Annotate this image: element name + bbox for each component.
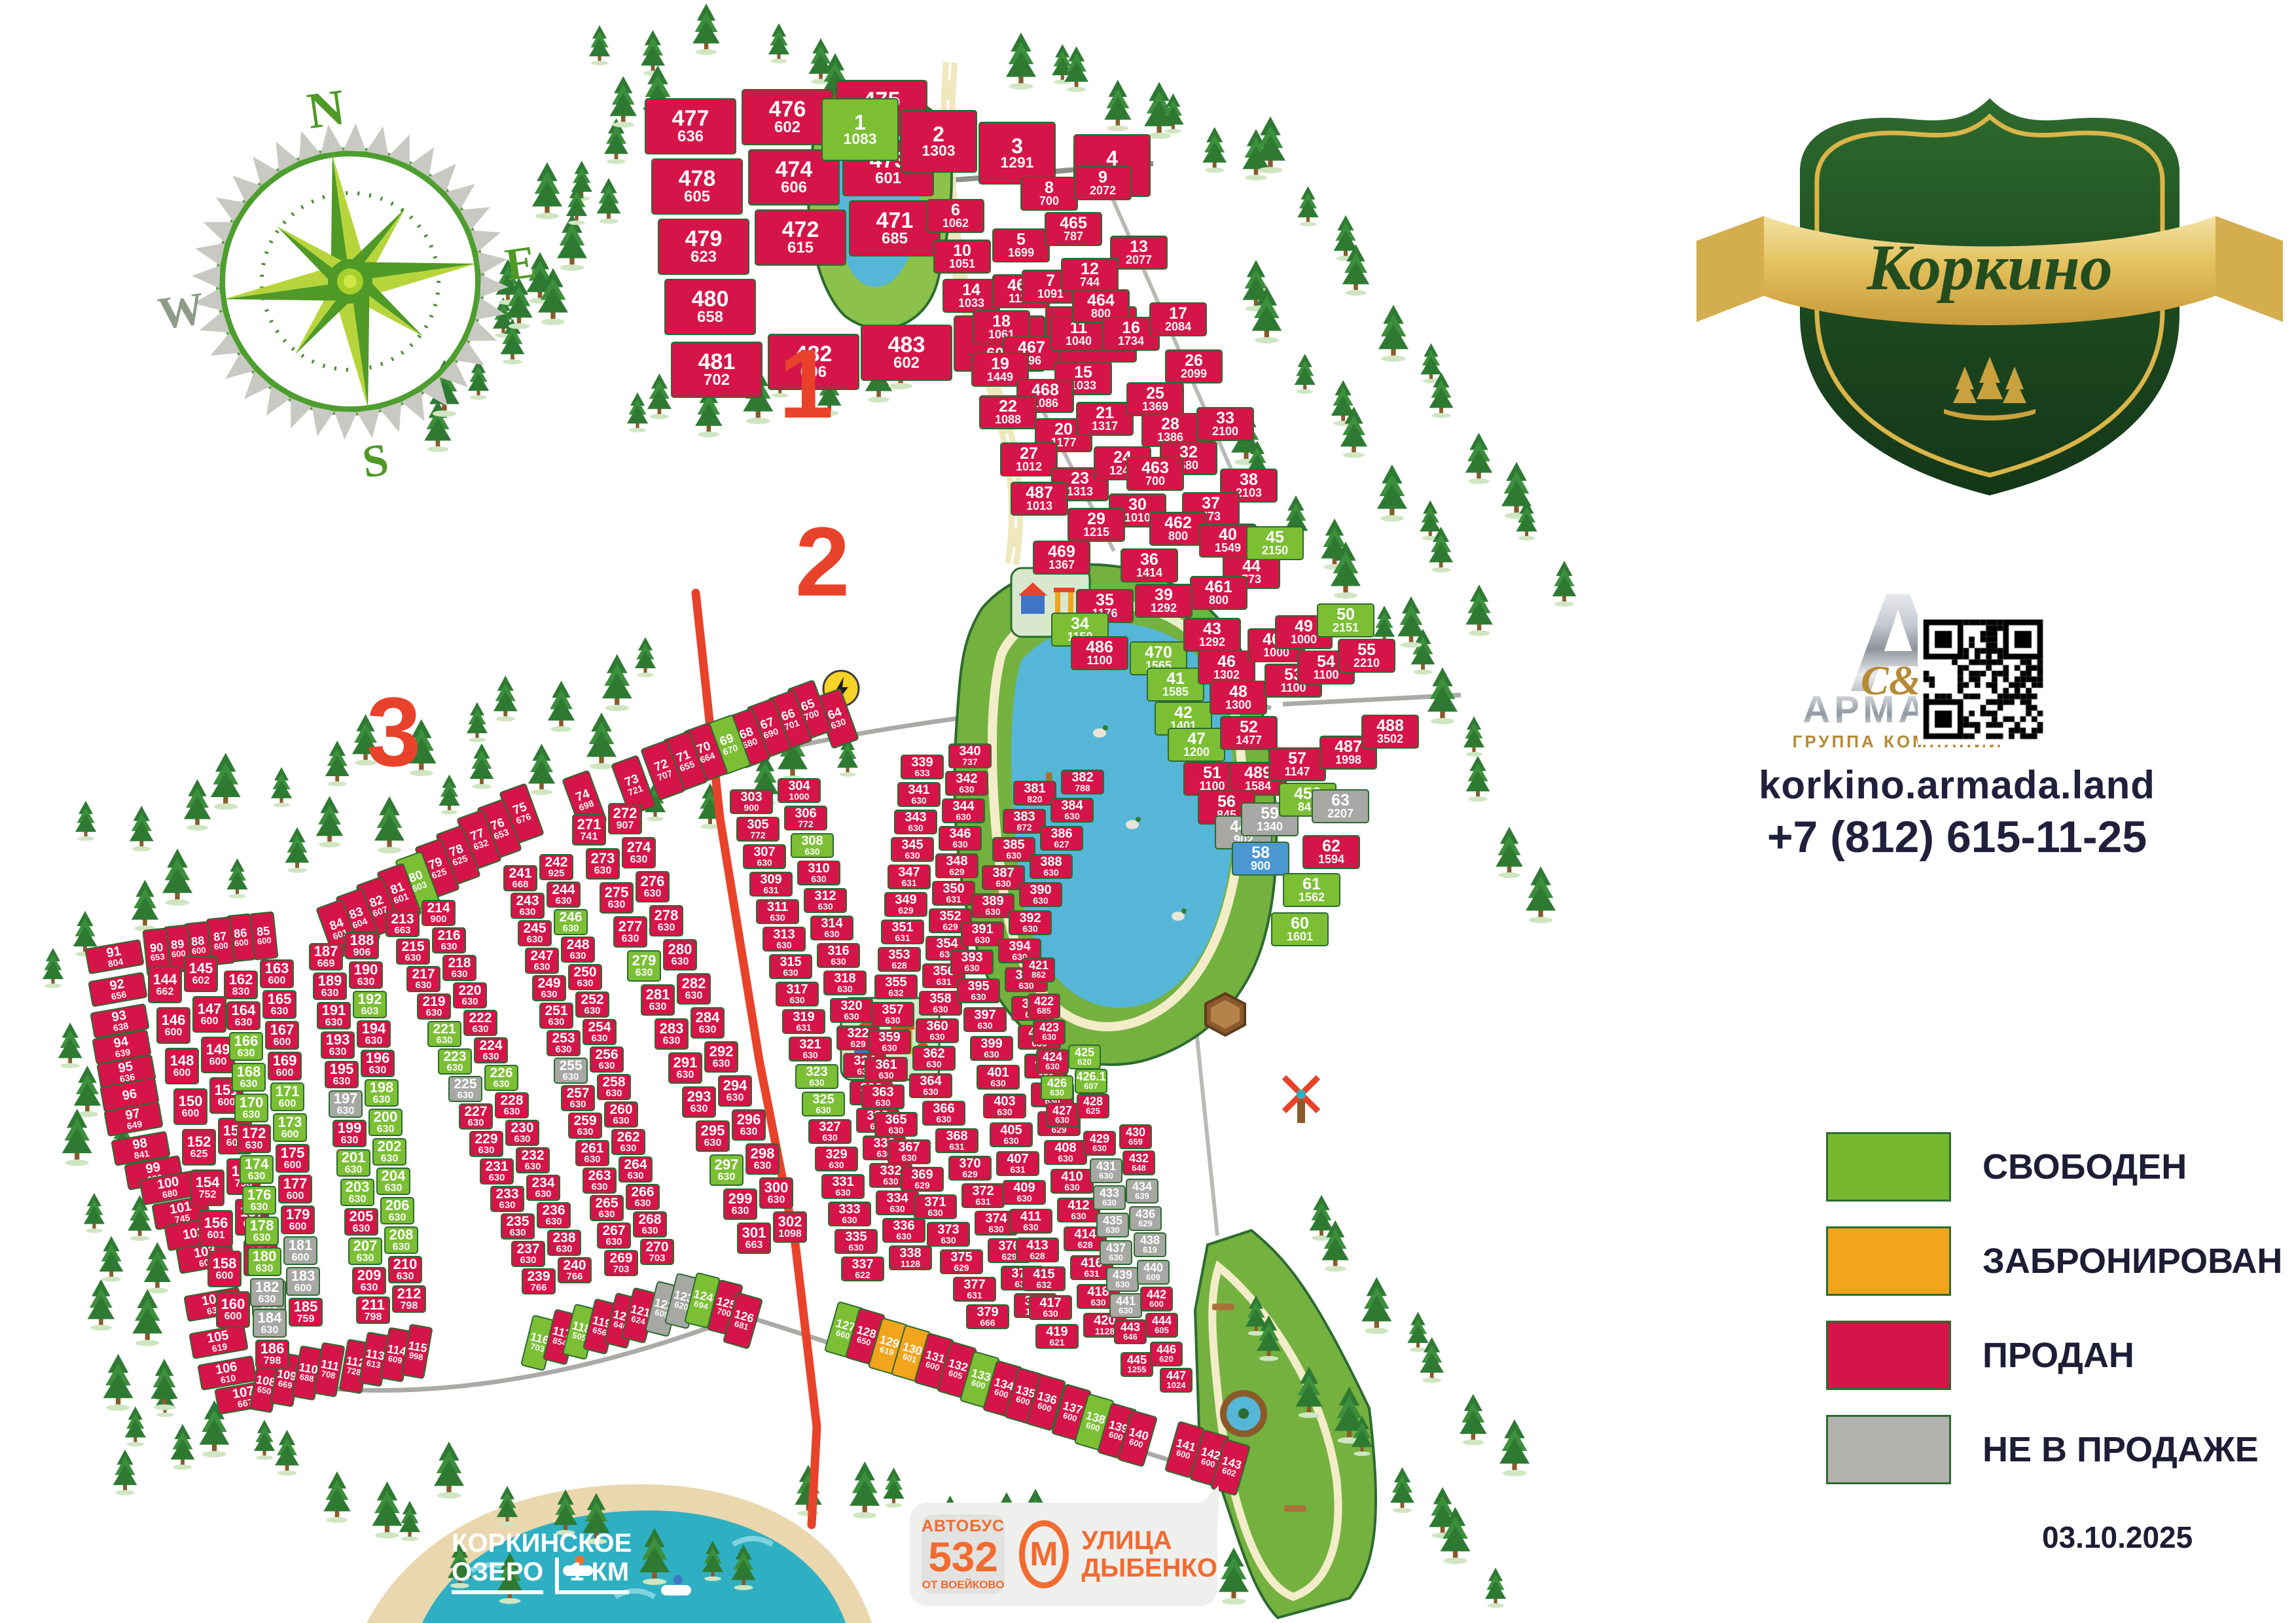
plot-46[interactable]: 461302 [1198, 651, 1255, 685]
plot-52[interactable]: 521477 [1220, 716, 1278, 750]
plot-427[interactable]: 427630 [1046, 1103, 1079, 1128]
plot-218[interactable]: 218630 [442, 955, 476, 981]
plot-430[interactable]: 430659 [1119, 1124, 1152, 1149]
plot-433[interactable]: 433630 [1093, 1185, 1126, 1210]
plot-147[interactable]: 147600 [192, 996, 226, 1033]
plot-305[interactable]: 305772 [736, 817, 780, 842]
plot-268[interactable]: 268630 [633, 1211, 667, 1238]
plot-434[interactable]: 434639 [1126, 1179, 1158, 1204]
plot-260[interactable]: 260630 [604, 1101, 638, 1128]
plot-247[interactable]: 247630 [525, 948, 559, 974]
plot-415[interactable]: 415632 [1022, 1266, 1066, 1291]
plot-444[interactable]: 444605 [1145, 1313, 1178, 1338]
plot-17[interactable]: 172084 [1149, 302, 1207, 336]
plot-196[interactable]: 196630 [361, 1050, 395, 1077]
plot-148[interactable]: 148600 [165, 1048, 199, 1084]
plot-265[interactable]: 265630 [590, 1195, 624, 1221]
plot-248[interactable]: 248630 [561, 936, 595, 963]
plot-275[interactable]: 275630 [600, 882, 634, 914]
plot-331[interactable]: 331630 [821, 1174, 865, 1199]
plot-426.1[interactable]: 426.1607 [1075, 1069, 1107, 1094]
plot-194[interactable]: 194630 [357, 1020, 391, 1048]
plot-439[interactable]: 439630 [1106, 1267, 1139, 1292]
plot-48[interactable]: 481300 [1210, 681, 1267, 715]
plot-188[interactable]: 188906 [345, 932, 379, 959]
plot-171[interactable]: 171600 [270, 1082, 304, 1111]
plot-405[interactable]: 405630 [990, 1122, 1033, 1147]
plot-483[interactable]: 483602 [861, 325, 952, 381]
plot-281[interactable]: 281630 [641, 984, 675, 1016]
plot-240[interactable]: 240766 [558, 1257, 592, 1283]
plot-57[interactable]: 571147 [1268, 747, 1326, 781]
plot-250[interactable]: 250630 [568, 964, 602, 990]
plot-205[interactable]: 205630 [344, 1208, 378, 1236]
plot-313[interactable]: 313630 [762, 927, 806, 952]
phone-number[interactable]: +7 (812) 615-11-25 [1715, 811, 2199, 863]
plot-366[interactable]: 366630 [922, 1101, 965, 1126]
plot-345[interactable]: 345630 [891, 837, 934, 862]
plot-295[interactable]: 295630 [696, 1120, 730, 1152]
plot-228[interactable]: 228630 [495, 1092, 529, 1118]
plot-333[interactable]: 333630 [828, 1202, 871, 1226]
plot-200[interactable]: 200630 [368, 1109, 403, 1136]
plot-190[interactable]: 190630 [349, 961, 383, 989]
plot-249[interactable]: 249630 [532, 975, 566, 1001]
plot-472[interactable]: 472615 [755, 209, 846, 266]
plot-173[interactable]: 173600 [273, 1113, 307, 1142]
plot-232[interactable]: 232630 [516, 1147, 550, 1173]
plot-144[interactable]: 144662 [148, 967, 182, 1003]
plot-279[interactable]: 279630 [627, 950, 661, 982]
plot-348[interactable]: 348629 [935, 853, 978, 878]
plot-36[interactable]: 361414 [1121, 548, 1178, 582]
plot-351[interactable]: 351631 [881, 919, 924, 944]
plot-186[interactable]: 186798 [255, 1340, 289, 1368]
plot-270[interactable]: 270703 [640, 1239, 674, 1265]
plot-216[interactable]: 216630 [432, 927, 466, 954]
plot-308[interactable]: 308630 [791, 833, 834, 858]
plot-241[interactable]: 241668 [503, 865, 537, 891]
plot-6[interactable]: 61062 [927, 199, 984, 233]
plot-259[interactable]: 259630 [568, 1113, 602, 1139]
plot-432[interactable]: 432648 [1122, 1150, 1155, 1175]
plot-403[interactable]: 403630 [983, 1094, 1026, 1118]
plot-479[interactable]: 479623 [658, 219, 749, 275]
plot-245[interactable]: 245630 [518, 920, 552, 946]
plot-410[interactable]: 410630 [1050, 1169, 1094, 1194]
plot-311[interactable]: 311630 [756, 899, 799, 924]
plot-327[interactable]: 327630 [808, 1119, 852, 1144]
plot-166[interactable]: 166630 [229, 1032, 263, 1061]
plot-342[interactable]: 342630 [945, 771, 988, 796]
plot-442[interactable]: 442600 [1140, 1287, 1173, 1311]
plot-303[interactable]: 303900 [730, 789, 773, 814]
plot-239[interactable]: 239766 [522, 1268, 556, 1294]
plot-372[interactable]: 372631 [961, 1183, 1005, 1208]
plot-274[interactable]: 274630 [622, 837, 656, 868]
plot-234[interactable]: 234630 [526, 1175, 560, 1201]
plot-316[interactable]: 316630 [817, 943, 860, 968]
plot-388[interactable]: 388630 [1030, 854, 1073, 879]
plot-50[interactable]: 502151 [1317, 603, 1374, 637]
plot-278[interactable]: 278630 [649, 905, 683, 936]
plot-346[interactable]: 346630 [939, 826, 982, 851]
plot-63[interactable]: 632207 [1312, 789, 1369, 823]
plot-373[interactable]: 373630 [927, 1222, 970, 1247]
plot-461[interactable]: 461800 [1190, 576, 1247, 610]
plot-395[interactable]: 395630 [957, 978, 1000, 1003]
plot-209[interactable]: 209630 [352, 1267, 386, 1294]
plot-178[interactable]: 178630 [245, 1217, 279, 1245]
plot-321[interactable]: 321630 [789, 1037, 832, 1061]
plot-422[interactable]: 422685 [1028, 993, 1060, 1018]
plot-363[interactable]: 363630 [861, 1084, 905, 1109]
plot-447[interactable]: 4471024 [1160, 1368, 1193, 1393]
plot-306[interactable]: 306772 [784, 806, 827, 830]
plot-407[interactable]: 407631 [996, 1151, 1039, 1176]
plot-393[interactable]: 393630 [950, 950, 994, 974]
plot-438[interactable]: 438619 [1134, 1232, 1166, 1257]
plot-43[interactable]: 431292 [1183, 618, 1241, 652]
plot-187[interactable]: 187669 [309, 943, 343, 971]
plot-242[interactable]: 242925 [539, 854, 573, 880]
plot-258[interactable]: 258630 [597, 1074, 631, 1100]
plot-413[interactable]: 413628 [1016, 1238, 1059, 1262]
plot-257[interactable]: 257630 [561, 1085, 595, 1111]
plot-243[interactable]: 243630 [511, 893, 545, 919]
plot-211[interactable]: 211798 [356, 1296, 390, 1324]
plot-465[interactable]: 465787 [1045, 212, 1102, 246]
plot-210[interactable]: 210630 [388, 1256, 422, 1283]
plot-27[interactable]: 271012 [1000, 442, 1058, 476]
plot-337[interactable]: 337622 [841, 1257, 884, 1281]
plot-10[interactable]: 101051 [933, 240, 991, 274]
plot-353[interactable]: 353628 [878, 947, 921, 972]
plot-325[interactable]: 325630 [802, 1092, 845, 1116]
plot-33[interactable]: 332100 [1196, 407, 1254, 441]
plot-357[interactable]: 357630 [871, 1002, 914, 1027]
plot-392[interactable]: 392630 [1009, 910, 1052, 935]
plot-425[interactable]: 425620 [1068, 1044, 1101, 1069]
plot-469[interactable]: 4691367 [1033, 541, 1090, 575]
plot-26[interactable]: 262099 [1165, 349, 1223, 383]
plot-222[interactable]: 222630 [463, 1010, 497, 1036]
plot-224[interactable]: 224630 [474, 1037, 508, 1063]
plot-45[interactable]: 452150 [1246, 526, 1304, 560]
plot-369[interactable]: 369629 [901, 1167, 944, 1192]
plot-246[interactable]: 246630 [554, 909, 588, 935]
plot-229[interactable]: 229630 [469, 1131, 503, 1157]
plot-214[interactable]: 214900 [422, 900, 456, 926]
plot-191[interactable]: 191630 [317, 1002, 351, 1029]
plot-193[interactable]: 193630 [321, 1031, 355, 1059]
plot-362[interactable]: 362630 [912, 1046, 956, 1071]
plot-307[interactable]: 307630 [743, 844, 786, 869]
plot-272[interactable]: 272907 [608, 803, 642, 834]
plot-195[interactable]: 195630 [325, 1061, 359, 1088]
plot-426[interactable]: 426630 [1041, 1075, 1073, 1100]
plot-428[interactable]: 428625 [1077, 1094, 1109, 1118]
plot-283[interactable]: 283630 [655, 1018, 689, 1050]
plot-478[interactable]: 478605 [651, 158, 743, 215]
plot-164[interactable]: 164630 [226, 1001, 260, 1030]
plot-183[interactable]: 183600 [286, 1267, 320, 1296]
plot-359[interactable]: 359630 [868, 1029, 911, 1054]
plot-233[interactable]: 233630 [490, 1186, 524, 1212]
plot-9[interactable]: 92072 [1074, 166, 1132, 200]
plot-481[interactable]: 481702 [671, 342, 762, 398]
plot-267[interactable]: 267630 [597, 1222, 631, 1249]
plot-382[interactable]: 382788 [1061, 770, 1104, 794]
plot-338[interactable]: 3381128 [889, 1245, 932, 1270]
plot-208[interactable]: 208630 [384, 1226, 418, 1254]
plot-152[interactable]: 152625 [182, 1129, 216, 1166]
plot-323[interactable]: 323630 [795, 1064, 838, 1089]
plot-263[interactable]: 263630 [583, 1168, 617, 1194]
plot-421[interactable]: 421862 [1022, 957, 1055, 982]
plot-12[interactable]: 12744 [1061, 258, 1119, 292]
plot-437[interactable]: 437630 [1100, 1240, 1132, 1265]
plot-160[interactable]: 160600 [216, 1291, 250, 1328]
plot-235[interactable]: 235630 [501, 1213, 535, 1240]
plot-336[interactable]: 336630 [882, 1218, 925, 1243]
plot-349[interactable]: 349629 [884, 892, 927, 917]
plot-314[interactable]: 314630 [810, 916, 853, 940]
plot-423[interactable]: 423630 [1033, 1020, 1066, 1044]
plot-277[interactable]: 277630 [613, 916, 647, 948]
plot-339[interactable]: 339633 [901, 755, 944, 779]
plot-251[interactable]: 251630 [539, 1003, 573, 1029]
plot-350[interactable]: 350631 [932, 881, 975, 906]
plot-440[interactable]: 440609 [1137, 1260, 1170, 1285]
plot-145[interactable]: 145602 [184, 955, 218, 992]
plot-371[interactable]: 371630 [914, 1194, 957, 1219]
plot-1[interactable]: 11083 [821, 98, 899, 161]
plot-62[interactable]: 621594 [1302, 835, 1360, 869]
plot-441[interactable]: 441630 [1109, 1293, 1142, 1318]
plot-150[interactable]: 150600 [173, 1088, 207, 1125]
website-link[interactable]: korkino.armada.land [1715, 762, 2199, 808]
plot-408[interactable]: 408630 [1044, 1140, 1087, 1165]
plot-156[interactable]: 156601 [199, 1210, 233, 1247]
plot-213[interactable]: 213663 [386, 911, 420, 937]
plot-181[interactable]: 181600 [283, 1236, 317, 1265]
plot-334[interactable]: 334630 [876, 1190, 919, 1215]
plot-390[interactable]: 390630 [1019, 882, 1062, 907]
plot-318[interactable]: 318630 [823, 971, 867, 995]
plot-29[interactable]: 291215 [1067, 508, 1125, 542]
plot-301[interactable]: 301663 [737, 1222, 771, 1254]
plot-223[interactable]: 223630 [438, 1048, 472, 1075]
plot-21[interactable]: 211317 [1076, 402, 1134, 436]
plot-217[interactable]: 217630 [406, 966, 440, 992]
plot-180[interactable]: 180630 [247, 1247, 281, 1276]
plot-202[interactable]: 202630 [372, 1138, 406, 1166]
plot-302[interactable]: 3021098 [773, 1211, 807, 1243]
plot-168[interactable]: 168630 [232, 1063, 266, 1092]
plot-284[interactable]: 284630 [691, 1007, 725, 1039]
plot-174[interactable]: 174630 [240, 1155, 274, 1184]
plot-446[interactable]: 446620 [1150, 1342, 1183, 1366]
plot-177[interactable]: 177600 [278, 1175, 312, 1204]
plot-220[interactable]: 220630 [453, 982, 487, 1008]
plot-146[interactable]: 146600 [156, 1007, 190, 1044]
plot-276[interactable]: 276630 [636, 871, 670, 902]
plot-182[interactable]: 182630 [250, 1278, 284, 1307]
plot-443[interactable]: 443646 [1114, 1319, 1147, 1344]
plot-192[interactable]: 192603 [353, 991, 387, 1018]
plot-411[interactable]: 411630 [1009, 1209, 1052, 1234]
plot-317[interactable]: 317630 [776, 982, 819, 1007]
plot-14[interactable]: 141033 [942, 279, 1000, 313]
plot-189[interactable]: 189630 [313, 972, 347, 1000]
plot-165[interactable]: 165630 [262, 990, 296, 1019]
plot-163[interactable]: 163600 [260, 959, 294, 988]
plot-401[interactable]: 401630 [977, 1065, 1020, 1090]
plot-298[interactable]: 298630 [745, 1143, 780, 1175]
plot-299[interactable]: 299630 [723, 1188, 757, 1220]
plot-3[interactable]: 31291 [978, 122, 1056, 185]
plot-399[interactable]: 399630 [970, 1036, 1013, 1061]
plot-445[interactable]: 4451255 [1121, 1352, 1153, 1377]
plot-184[interactable]: 184630 [253, 1309, 287, 1338]
plot-47[interactable]: 471200 [1168, 728, 1225, 762]
plot-39[interactable]: 391292 [1135, 584, 1193, 618]
plot-375[interactable]: 375629 [940, 1249, 983, 1274]
plot-172[interactable]: 172630 [237, 1124, 271, 1153]
plot-198[interactable]: 198630 [365, 1079, 399, 1107]
plot-368[interactable]: 368631 [935, 1128, 978, 1153]
plot-221[interactable]: 221630 [427, 1021, 461, 1047]
plot-41[interactable]: 411585 [1147, 668, 1204, 702]
plot-341[interactable]: 341630 [897, 782, 941, 807]
plot-297[interactable]: 297630 [709, 1154, 744, 1186]
plot-255[interactable]: 255630 [554, 1058, 588, 1084]
plot-431[interactable]: 431630 [1090, 1158, 1122, 1183]
plot-304[interactable]: 3041000 [778, 778, 821, 803]
plot-384[interactable]: 384630 [1050, 798, 1094, 823]
plot-25[interactable]: 251369 [1126, 382, 1184, 416]
plot-197[interactable]: 197630 [329, 1090, 363, 1118]
plot-215[interactable]: 215630 [396, 938, 430, 965]
plot-269[interactable]: 269703 [604, 1250, 638, 1276]
plot-206[interactable]: 206630 [380, 1197, 414, 1224]
plot-55[interactable]: 552210 [1338, 639, 1395, 673]
plot-335[interactable]: 335630 [834, 1229, 878, 1254]
plot-462[interactable]: 462800 [1149, 512, 1207, 546]
plot-238[interactable]: 238630 [547, 1230, 581, 1256]
plot-429[interactable]: 429630 [1083, 1131, 1116, 1156]
plot-154[interactable]: 154752 [190, 1169, 224, 1206]
plot-207[interactable]: 207630 [348, 1238, 382, 1265]
plot-262[interactable]: 262630 [611, 1129, 645, 1155]
plot-22[interactable]: 221088 [979, 395, 1037, 429]
plot-273[interactable]: 273630 [586, 848, 620, 880]
plot-256[interactable]: 256630 [590, 1046, 624, 1073]
plot-212[interactable]: 212798 [392, 1285, 426, 1313]
plot-167[interactable]: 167600 [265, 1021, 299, 1050]
plot-347[interactable]: 347631 [888, 865, 931, 889]
plot-13[interactable]: 132077 [1110, 236, 1168, 270]
plot-231[interactable]: 231630 [480, 1158, 514, 1185]
plot-463[interactable]: 463700 [1126, 457, 1184, 491]
plot-320[interactable]: 320630 [830, 998, 873, 1023]
plot-343[interactable]: 343630 [894, 810, 937, 834]
plot-282[interactable]: 282630 [677, 973, 711, 1005]
plot-487[interactable]: 4871013 [1011, 482, 1068, 516]
plot-225[interactable]: 225630 [448, 1076, 482, 1102]
plot-230[interactable]: 230630 [505, 1120, 539, 1146]
plot-261[interactable]: 261630 [575, 1140, 609, 1166]
plot-185[interactable]: 185759 [289, 1298, 323, 1327]
plot-227[interactable]: 227630 [459, 1103, 493, 1130]
plot-340[interactable]: 340737 [948, 743, 992, 768]
plot-436[interactable]: 436629 [1129, 1206, 1162, 1231]
plot-360[interactable]: 360630 [916, 1018, 959, 1043]
plot-435[interactable]: 435630 [1096, 1213, 1129, 1238]
plot-162[interactable]: 162830 [224, 971, 258, 999]
plot-236[interactable]: 236630 [537, 1202, 571, 1228]
plot-379[interactable]: 379666 [966, 1304, 1009, 1329]
plot-293[interactable]: 293630 [682, 1086, 716, 1118]
plot-280[interactable]: 280630 [663, 939, 697, 971]
plot-237[interactable]: 237630 [511, 1241, 545, 1267]
plot-61[interactable]: 611562 [1283, 873, 1340, 907]
plot-364[interactable]: 364630 [909, 1073, 952, 1098]
plot-158[interactable]: 158600 [207, 1251, 242, 1287]
plot-60[interactable]: 601601 [1271, 912, 1329, 946]
plot-477[interactable]: 477636 [645, 98, 736, 154]
plot-409[interactable]: 409630 [1003, 1180, 1046, 1205]
plot-486[interactable]: 4861100 [1071, 636, 1128, 670]
plot-8[interactable]: 8700 [1020, 177, 1078, 211]
plot-397[interactable]: 397630 [963, 1007, 1007, 1032]
plot-252[interactable]: 252630 [575, 991, 609, 1018]
plot-365[interactable]: 365630 [874, 1112, 918, 1137]
plot-253[interactable]: 253630 [547, 1030, 581, 1056]
plot-2[interactable]: 21303 [900, 110, 977, 173]
plot-476[interactable]: 476602 [742, 89, 833, 145]
plot-424[interactable]: 424630 [1036, 1049, 1069, 1074]
plot-358[interactable]: 358630 [919, 991, 962, 1016]
plot-179[interactable]: 179600 [281, 1205, 315, 1234]
plot-480[interactable]: 480658 [664, 279, 756, 335]
plot-329[interactable]: 329630 [815, 1147, 858, 1171]
plot-312[interactable]: 312630 [804, 888, 847, 913]
plot-296[interactable]: 296630 [732, 1109, 766, 1141]
plot-201[interactable]: 201630 [336, 1149, 370, 1177]
plot-292[interactable]: 292630 [704, 1041, 738, 1073]
plot-310[interactable]: 310630 [797, 861, 840, 885]
plot-254[interactable]: 254630 [583, 1019, 617, 1045]
plot-291[interactable]: 291630 [668, 1052, 702, 1084]
plot-319[interactable]: 319631 [782, 1009, 825, 1034]
plot-344[interactable]: 344630 [942, 798, 985, 823]
plot-170[interactable]: 170630 [234, 1094, 268, 1122]
plot-244[interactable]: 244630 [547, 882, 581, 908]
plot-417[interactable]: 417630 [1029, 1295, 1072, 1320]
plot-361[interactable]: 361630 [865, 1057, 908, 1082]
plot-203[interactable]: 203630 [340, 1179, 374, 1206]
plot-419[interactable]: 419621 [1035, 1324, 1079, 1349]
plot-204[interactable]: 204630 [376, 1168, 410, 1195]
plot-176[interactable]: 176630 [242, 1186, 276, 1215]
plot-386[interactable]: 386627 [1040, 826, 1083, 851]
plot-266[interactable]: 266630 [626, 1184, 660, 1210]
plot-5[interactable]: 51699 [992, 228, 1050, 262]
plot-300[interactable]: 300630 [759, 1177, 793, 1209]
plot-294[interactable]: 294630 [718, 1075, 752, 1107]
